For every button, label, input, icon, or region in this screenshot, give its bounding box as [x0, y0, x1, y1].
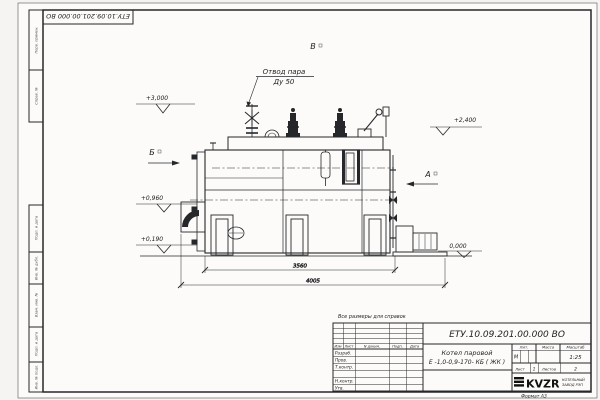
row-razrab: Разраб. [335, 351, 351, 356]
scale-label: Масштаб [566, 345, 585, 350]
margin-label: Подп. и дата [35, 216, 39, 240]
col-sign: Подп. [392, 345, 403, 349]
scale-value: 1:25 [569, 355, 582, 361]
row-utv: Утв. [335, 386, 344, 391]
col-list: Лист [344, 345, 355, 349]
product-name-line1: Котел паровой [442, 349, 493, 357]
lit-value: М [514, 355, 519, 361]
callout-line2: Ду 50 [273, 78, 295, 86]
drawing-sheet: ЕТУ.10.09.201.00.000 ВО Перв. примен. Сп… [0, 0, 600, 400]
margin-label: Перв. примен. [35, 27, 39, 54]
elevation-label: +2,400 [454, 117, 476, 124]
lit-label: Лит. [519, 345, 529, 350]
margin-label: Справ. № [35, 87, 39, 105]
mass-label: Масса [542, 345, 555, 350]
view-letter: А [424, 170, 430, 179]
view-letter: Б [149, 148, 155, 157]
product-name-line2: Е -1,0-0,9-170- КБ ( ЖК ) [429, 359, 505, 366]
elevation-label: 0,000 [449, 243, 466, 250]
elevation-label: +3,000 [146, 95, 168, 102]
col-izm: Изм [334, 345, 341, 349]
logo-caption-line2: ЗАВОД РЭП [562, 383, 583, 387]
callout-line1: Отвод пара [263, 68, 306, 76]
format-label: Формат А3 [521, 394, 547, 400]
dimension-text: 4005 [306, 279, 320, 285]
sheet-label: Лист [514, 367, 525, 372]
doc-number: ЕТУ.10.09.201.00.000 ВО [449, 330, 565, 340]
logo-bars-icon [514, 377, 524, 387]
margin-label: Подп. и дата [35, 332, 39, 356]
logo-caption-line1: КОТЕЛЬНЫЙ [562, 377, 585, 382]
margin-label: Инв. № подл. [35, 365, 39, 390]
corner-stamp-text: ЕТУ.10.09.201.00.000 ВО [46, 12, 130, 20]
col-doc: N докум. [364, 345, 380, 349]
row-nkontr: Н.контр. [335, 379, 354, 384]
view-letter: В [310, 42, 316, 51]
row-tkontr: Т.контр. [335, 365, 353, 370]
sheets-label: Листов [541, 367, 557, 372]
reference-note: Все размеры для справок [338, 314, 406, 320]
elevation-label: +0,190 [141, 236, 163, 243]
dimension-text: 3560 [293, 264, 307, 270]
row-prov: Пров. [335, 358, 347, 363]
logo-text: KVZR [526, 378, 560, 391]
elevation-label: +0,960 [141, 195, 163, 202]
margin-label: Взам. инв. № [35, 293, 39, 318]
sheets-value: 2 [574, 367, 577, 373]
col-date: Дата [409, 345, 419, 349]
margin-label: Инв. № дубл. [35, 256, 39, 281]
sheet-value: 1 [533, 367, 536, 373]
